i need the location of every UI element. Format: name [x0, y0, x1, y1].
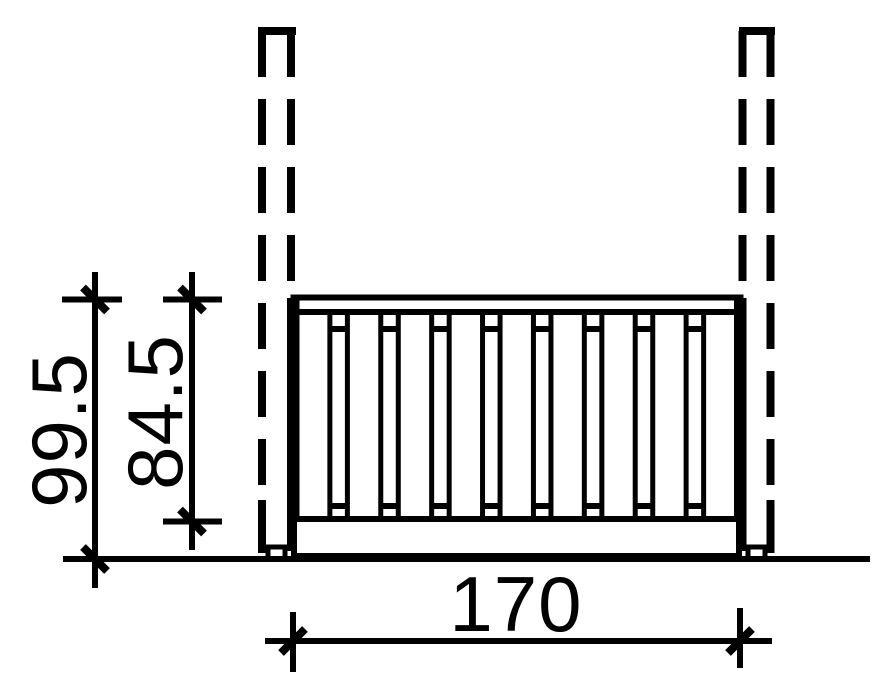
- drawing-canvas: 99.5 84.5 170: [0, 0, 885, 687]
- dimension-label-railing-width: 170: [449, 560, 582, 648]
- dimension-label-railing-height: 84.5: [111, 334, 199, 490]
- right-post: [739, 31, 776, 559]
- technical-drawing: 99.5 84.5 170: [0, 0, 885, 687]
- railing-handrail: [294, 298, 741, 313]
- railing-slats: [330, 309, 704, 522]
- left-post: [258, 31, 296, 559]
- dimension-label-total-height: 99.5: [15, 352, 103, 508]
- railing-bottom-rail: [294, 519, 739, 556]
